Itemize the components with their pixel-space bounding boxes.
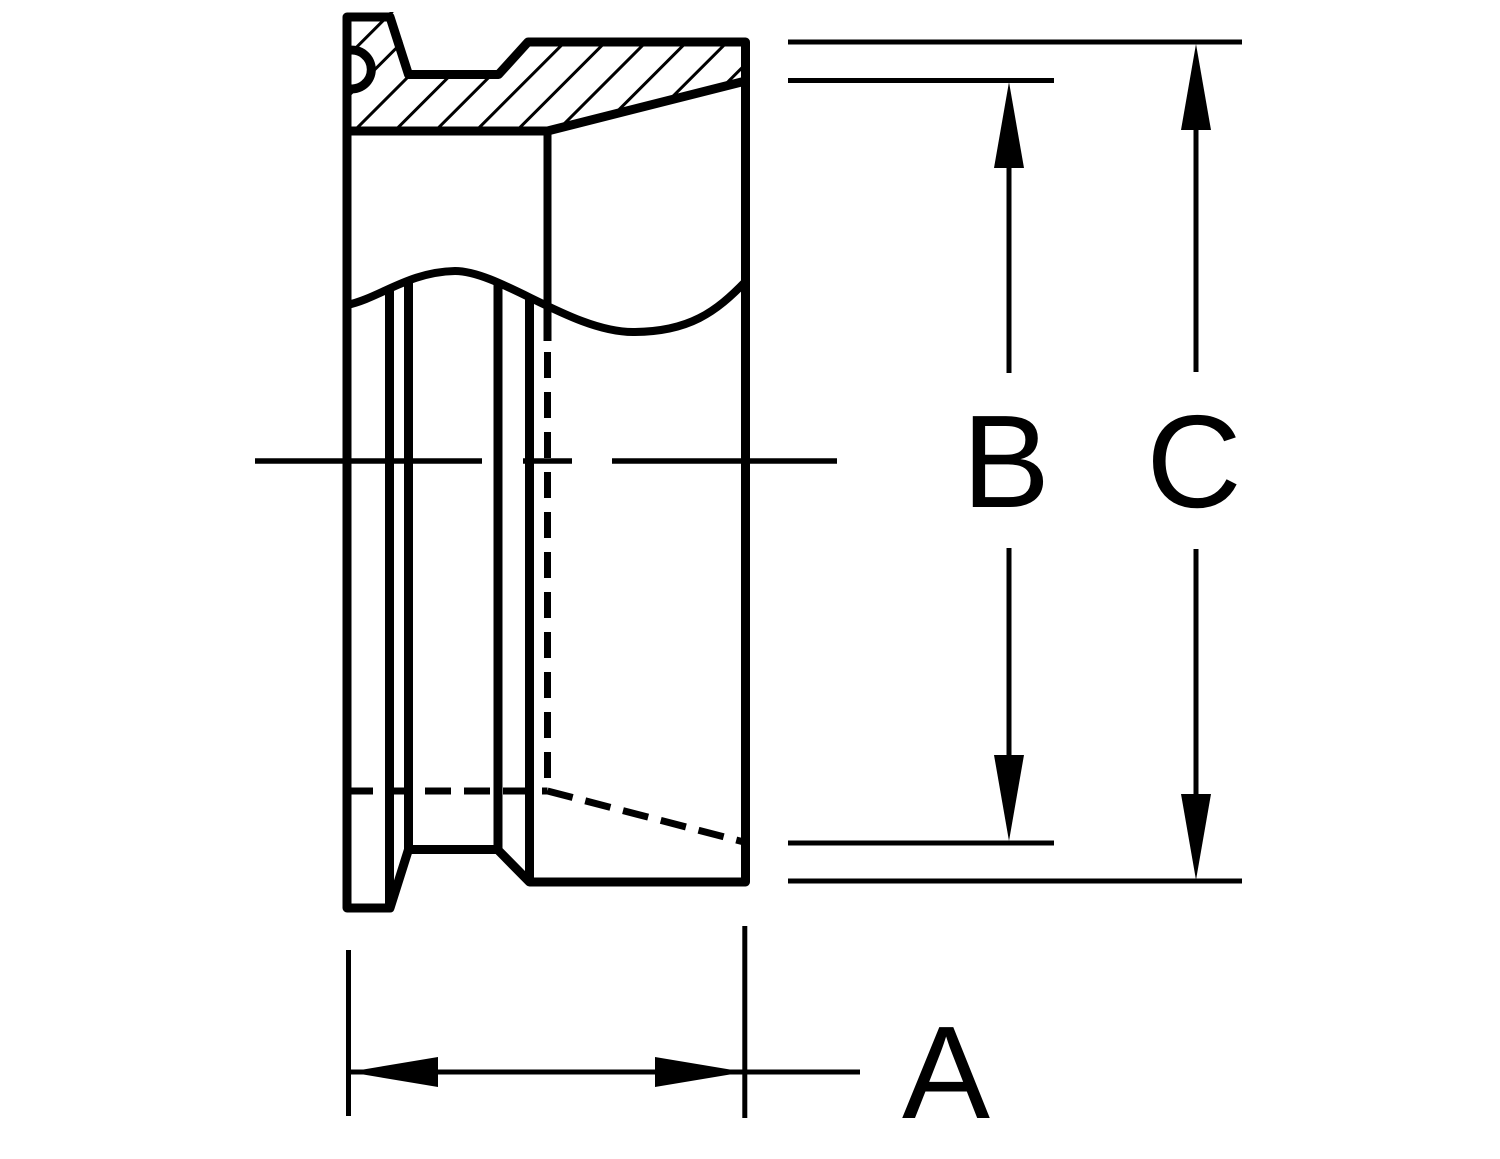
svg-text:A: A xyxy=(902,999,990,1146)
svg-text:C: C xyxy=(1146,388,1241,535)
svg-text:B: B xyxy=(962,388,1050,535)
